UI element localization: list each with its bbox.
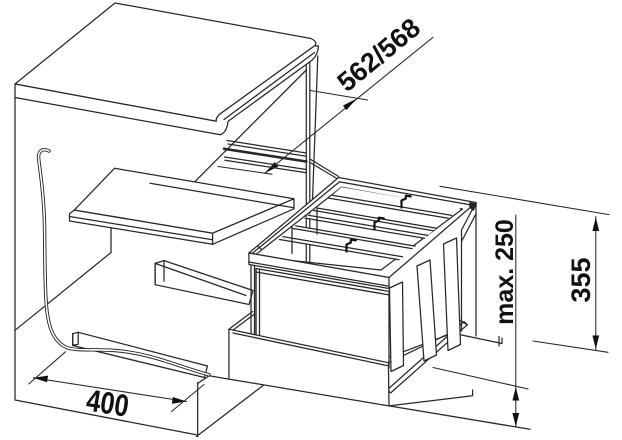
svg-text:max. 250: max. 250 — [491, 219, 519, 325]
svg-text:400: 400 — [84, 383, 131, 424]
svg-text:355: 355 — [566, 257, 596, 302]
